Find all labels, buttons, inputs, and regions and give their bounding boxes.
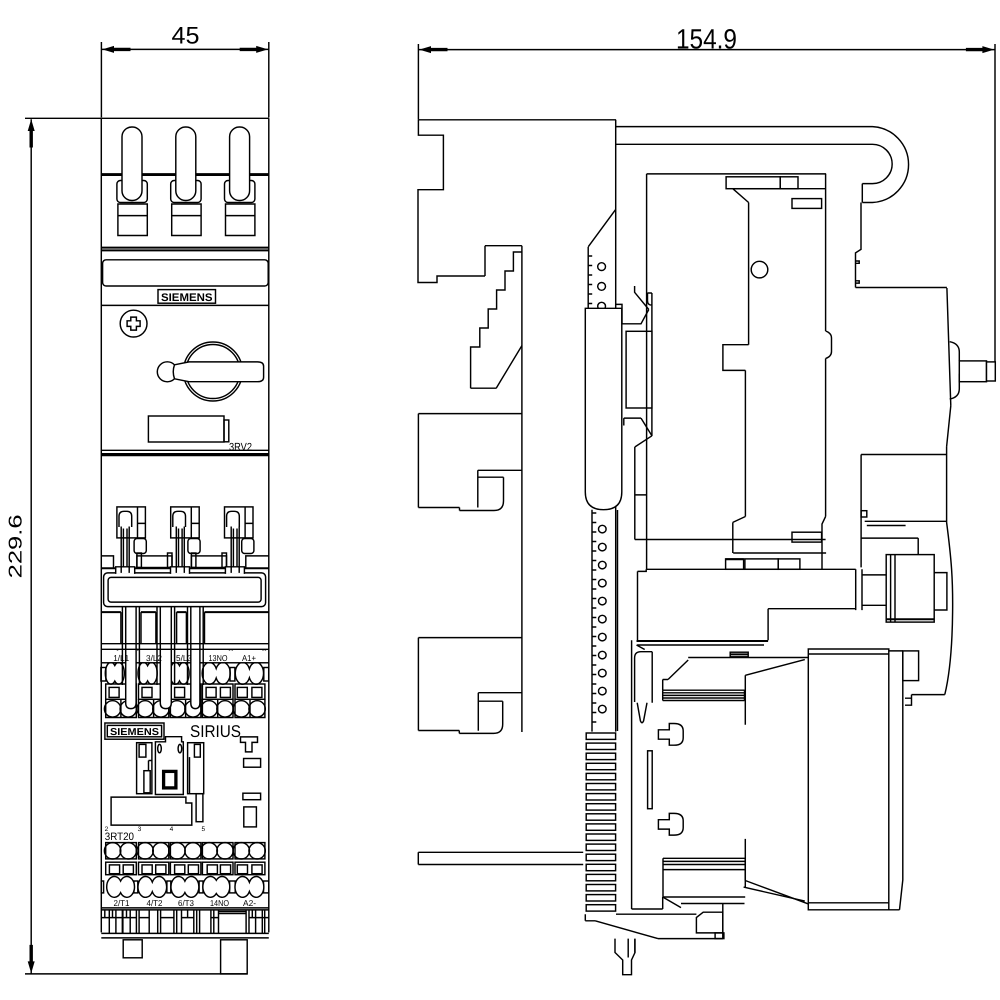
svg-text:1/L1: 1/L1 — [113, 653, 129, 663]
svg-text:3RV2: 3RV2 — [229, 441, 252, 453]
svg-text:2/T1: 2/T1 — [114, 898, 130, 908]
svg-text:13NO: 13NO — [209, 653, 228, 663]
svg-text:6/T3: 6/T3 — [178, 898, 194, 908]
svg-text:5: 5 — [202, 826, 206, 833]
svg-text:229.6: 229.6 — [5, 514, 26, 578]
svg-text:45: 45 — [172, 23, 200, 50]
svg-text:SIEMENS: SIEMENS — [161, 292, 213, 304]
svg-text:3/L2: 3/L2 — [146, 653, 162, 663]
svg-text:SIRIUS: SIRIUS — [190, 722, 241, 741]
svg-text:3RT20: 3RT20 — [105, 831, 134, 843]
svg-text:A2-: A2- — [243, 898, 256, 908]
svg-text:SIEMENS: SIEMENS — [110, 727, 159, 738]
svg-text:154.9: 154.9 — [676, 24, 737, 55]
svg-text:14NO: 14NO — [210, 898, 229, 908]
svg-text:4: 4 — [170, 826, 174, 833]
svg-text:3: 3 — [138, 826, 142, 833]
svg-text:A1+: A1+ — [242, 653, 256, 663]
svg-text:5/L3: 5/L3 — [176, 653, 192, 663]
svg-text:4/T2: 4/T2 — [147, 898, 163, 908]
